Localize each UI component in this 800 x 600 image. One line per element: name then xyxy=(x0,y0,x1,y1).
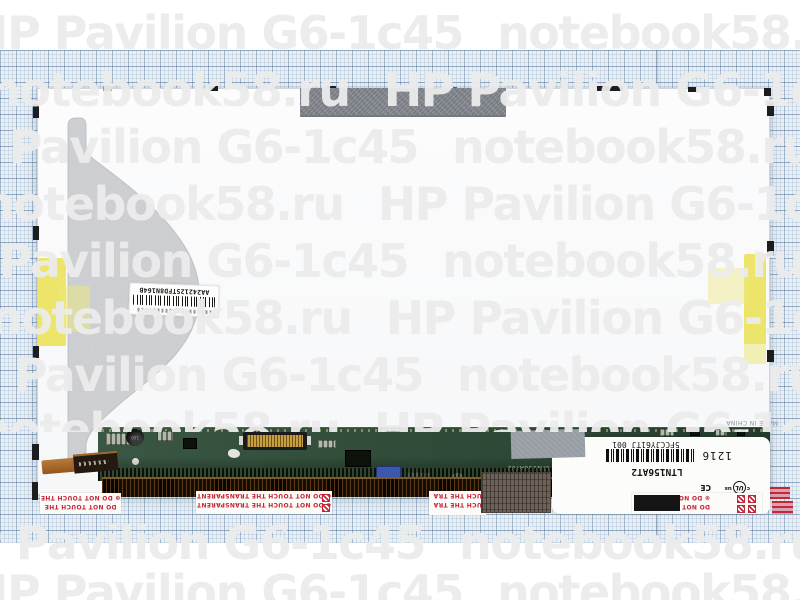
mounting-notch xyxy=(597,86,623,91)
watermark-row: HP Pavilion G6-1c45notebook58.ruHP Pavil… xyxy=(0,565,800,600)
yellow-tape-right-lower xyxy=(744,330,766,364)
left-edge-tab xyxy=(32,444,39,460)
right-edge-tab xyxy=(767,241,774,256)
sticker-overhang xyxy=(772,501,793,514)
model-number: LTN156AT2 xyxy=(618,465,696,477)
gray-tape-piece xyxy=(511,429,586,459)
warning-text: DO NOT TOUCH THE xyxy=(40,502,121,511)
left-edge-tab xyxy=(33,226,39,240)
warning-sticker: ⊛ DO NOT TOUCH THE TRANSPARENT ⊛ DO NOT … xyxy=(196,491,332,514)
red-hatch-mark xyxy=(737,505,745,513)
warning-text: ⊛ DO NOT TOUCH THE TRANSPARENT xyxy=(196,491,332,500)
connector-lug xyxy=(307,436,311,445)
mounting-notch xyxy=(688,87,698,92)
barcode xyxy=(606,449,694,462)
label-fine-print xyxy=(136,308,212,315)
timing-controller-chip xyxy=(345,450,371,467)
warning-text: ⊛ DO NOT TOUCH THE xyxy=(40,493,121,502)
red-hatch-mark xyxy=(748,495,756,503)
product-photo: AA24212STFD8N164B 100 LTN156AT02 xyxy=(0,0,800,600)
red-hatch-mark xyxy=(322,504,330,512)
yellow-tape-left-flap xyxy=(58,286,90,332)
left-edge-tab xyxy=(33,346,39,358)
warning-text: UCH THE TRA xyxy=(429,500,486,509)
right-edge-tab xyxy=(767,102,774,116)
backing-barcode-label: AA24212STFD8N164B xyxy=(128,282,219,317)
corner-notch xyxy=(764,88,771,96)
warning-text: UCH THE TRA xyxy=(429,491,486,500)
ul-us: us xyxy=(725,485,732,491)
red-hatch-mark xyxy=(748,505,756,513)
warning-text: ⊛ DO NOT TOUCH THE TRANSPARENT xyxy=(196,500,332,509)
date-code: 1216 xyxy=(698,448,732,462)
ul-c: c xyxy=(747,485,750,491)
mounting-notch xyxy=(103,86,112,91)
ic-chip xyxy=(737,430,745,436)
warning-sticker: UCH THE TRA UCH THE TRA xyxy=(429,491,486,515)
left-edge-tab xyxy=(33,104,39,118)
ic-chip xyxy=(183,438,197,449)
smd-capacitors xyxy=(715,429,727,436)
serial-number: 5FCCJY61TJ 001 xyxy=(594,438,698,449)
smd-capacitors xyxy=(318,440,336,448)
yellow-tape-right-flap xyxy=(708,268,748,304)
connector-lug xyxy=(239,436,243,445)
solder-pad-row xyxy=(102,429,762,432)
silkscreen-logo xyxy=(228,449,240,458)
black-tape-block xyxy=(634,495,680,511)
inductor-component: 100 xyxy=(126,429,144,446)
connector-pins xyxy=(247,435,303,447)
sticker-overhang xyxy=(770,487,790,499)
left-edge-tab xyxy=(32,482,38,500)
barcode xyxy=(133,295,215,308)
ce-mark: CE xyxy=(695,482,711,492)
cof-ribbon-block xyxy=(481,472,551,513)
smd-capacitors xyxy=(157,431,173,441)
alignment-dot xyxy=(132,458,139,465)
mounting-notch xyxy=(209,86,218,91)
warning-sticker: ⊛ DO NOT TOUCH THE DO NOT TOUCH THE xyxy=(40,493,121,514)
ic-chip xyxy=(690,430,700,436)
smd-capacitors xyxy=(660,429,674,436)
lvds-connector xyxy=(243,432,307,450)
ribbon-cable-connector xyxy=(73,451,118,474)
made-in-text: MADE IN CHINA xyxy=(726,417,778,426)
red-hatch-mark xyxy=(322,494,330,502)
red-hatch-mark xyxy=(737,495,745,503)
barcode-label-text: AA24212STFD8N164B xyxy=(139,286,209,295)
top-tape-sticker xyxy=(300,88,506,117)
smd-capacitors xyxy=(106,433,130,445)
right-edge-tab xyxy=(767,350,774,362)
